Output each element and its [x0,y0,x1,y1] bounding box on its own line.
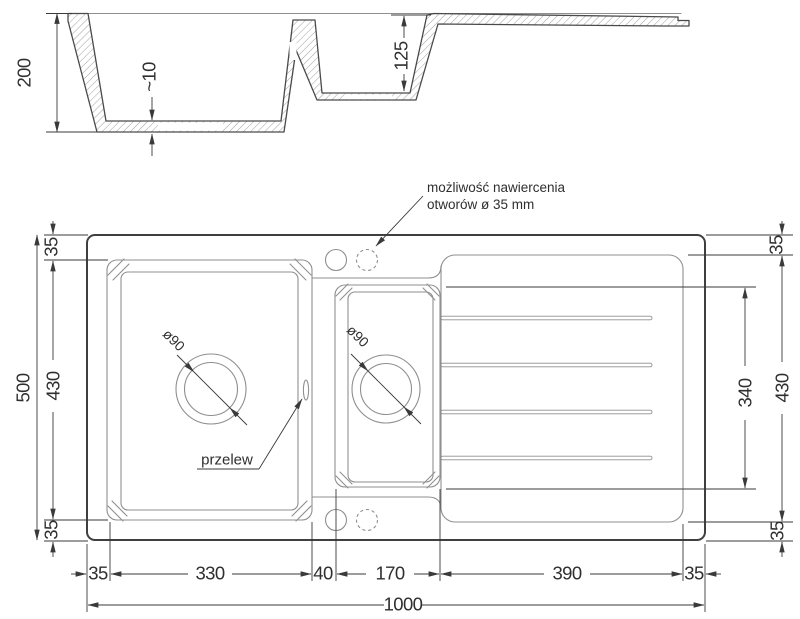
dim-text-40: 40 [313,563,333,584]
dim-text-small-bowl-depth: 125 [391,41,412,70]
main-bowl-outer [107,260,312,520]
main-drain-dim-arrow-a [177,355,194,372]
drill-note-line1: możliwość nawiercenia [427,180,566,195]
dims-bottom: 35 330 40 170 390 35 1000 [71,489,721,615]
section-overflow-slot-right [323,43,329,59]
overflow-leader [259,399,302,469]
small-drain-dim-chord [368,371,404,407]
dim-text-35-top-left: 35 [41,237,62,257]
section-main-drain-gap [158,123,223,131]
deck-edge-bottom [312,497,441,509]
drill-note-line2: otworów ø 35 mm [427,197,534,212]
drill-note-leader [376,196,423,246]
dim-text-35-bottom-2: 35 [684,563,704,584]
main-drain-label: ø90 [160,326,189,355]
dim-text-35-bottom-right: 35 [767,521,788,541]
dim-text-500: 500 [13,373,34,402]
technical-drawing-page: 200 ~10 125 ø90 przel [0,0,800,619]
section-small-drain-gap [344,95,392,100]
dim-text-35-bottom-left: 35 [41,520,62,540]
main-bowl-corner-chamfers [108,259,311,521]
tap-hole-top [326,250,347,271]
deck-edge-top [312,266,441,278]
dim-text-bottom-thickness: ~10 [139,62,160,92]
optional-hole-bottom [357,510,378,531]
dim-text-35-top-right: 35 [766,235,787,255]
dims-left: 500 430 35 35 [13,221,109,557]
section-overflow-slot-left [290,42,297,60]
dim-text-430-right: 430 [772,373,793,402]
small-bowl-corner-chamfers [336,284,439,488]
dims-right: 430 340 35 35 [446,221,793,557]
section-sink-profile [68,14,689,133]
dim-text-390: 390 [552,563,581,584]
top-view: ø90 przelew ø90 [13,180,794,615]
small-bowl-outer [335,285,440,487]
dim-text-170: 170 [375,563,404,584]
drainboard-ridges [441,316,652,460]
drainboard-outline [441,255,683,522]
main-drain-dim-chord [194,372,230,408]
section-view: 200 ~10 125 [14,14,690,157]
dim-text-1000: 1000 [384,594,423,615]
main-bowl-inner [121,272,298,510]
dim-text-430-left: 430 [43,371,64,400]
dim-text-35-bottom-1: 35 [88,563,108,584]
dim-text-330: 330 [195,563,224,584]
dim-text-section-height: 200 [14,58,35,87]
sink-outline [87,235,705,540]
dim-text-340: 340 [735,378,756,407]
overflow-label: przelew [201,452,253,469]
sink-technical-drawing: 200 ~10 125 ø90 przel [0,0,800,619]
overflow-slot [303,380,308,400]
optional-hole-top [357,250,378,271]
